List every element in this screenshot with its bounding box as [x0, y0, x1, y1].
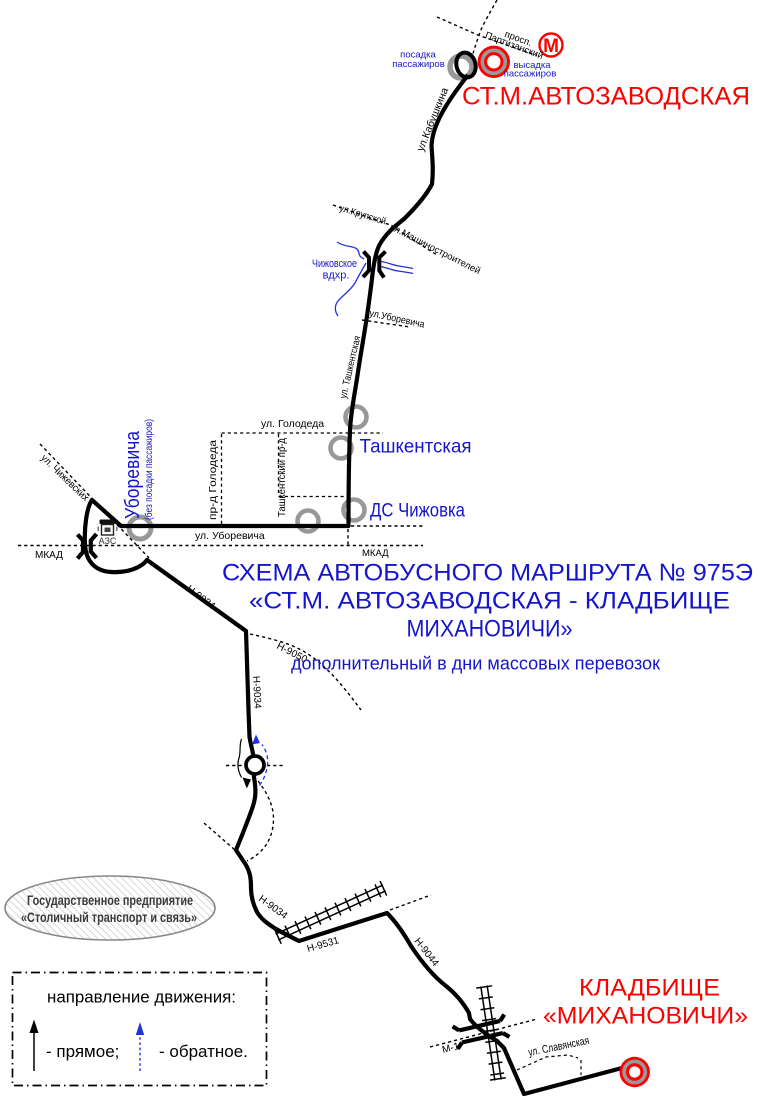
svg-text:пассажиров: пассажиров	[504, 69, 557, 80]
svg-text:МКАД: МКАД	[362, 548, 389, 559]
svg-text:СТ.М.АВТОЗАВОДСКАЯ: СТ.М.АВТОЗАВОДСКАЯ	[462, 83, 750, 111]
svg-text:КЛАДБИЩЕ: КЛАДБИЩЕ	[579, 975, 720, 1002]
svg-text:Н-9034: Н-9034	[250, 676, 263, 710]
svg-text:- прямое;: - прямое;	[46, 1042, 119, 1061]
svg-text:Ташкентская: Ташкентская	[360, 436, 472, 458]
svg-text:дополнительный в дни массовых: дополнительный в дни массовых перевозок	[291, 654, 660, 674]
svg-text:Чижовское: Чижовское	[312, 258, 357, 270]
svg-text:вдхр.: вдхр.	[323, 270, 350, 282]
svg-text:пр-д Голодеда: пр-д Голодеда	[208, 439, 219, 520]
svg-text:Ташкентский пр-д: Ташкентский пр-д	[277, 438, 288, 517]
svg-text:(без посадки пассажиров): (без посадки пассажиров)	[143, 419, 155, 520]
svg-text:МКАД: МКАД	[35, 550, 63, 561]
svg-text:«СТ.М. АВТОЗАВОДСКАЯ - КЛАДБИЩ: «СТ.М. АВТОЗАВОДСКАЯ - КЛАДБИЩЕ	[249, 588, 730, 615]
svg-text:Государственное предприятие: Государственное предприятие	[27, 893, 193, 908]
svg-text:ул. Уборевича: ул. Уборевича	[195, 530, 265, 542]
svg-text:«МИХАНОВИЧИ»: «МИХАНОВИЧИ»	[543, 1003, 748, 1030]
svg-text:Уборевича: Уборевича	[122, 430, 144, 519]
svg-text:направление движения:: направление движения:	[47, 988, 236, 1007]
svg-text:СХЕМА АВТОБУСНОГО МАРШРУТА № 9: СХЕМА АВТОБУСНОГО МАРШРУТА № 975Э	[222, 560, 753, 587]
svg-text:«Столичный транспорт и связь»: «Столичный транспорт и связь»	[21, 910, 197, 925]
svg-text:АЗС: АЗС	[99, 536, 117, 546]
svg-text:ул. Голодеда: ул. Голодеда	[261, 418, 324, 430]
svg-text:пассажиров: пассажиров	[392, 59, 445, 70]
svg-text:- обратное.: - обратное.	[159, 1042, 248, 1061]
svg-text:МИХАНОВИЧИ»: МИХАНОВИЧИ»	[407, 616, 573, 643]
svg-text:М: М	[543, 36, 559, 57]
svg-text:ДС Чижовка: ДС Чижовка	[370, 500, 465, 522]
